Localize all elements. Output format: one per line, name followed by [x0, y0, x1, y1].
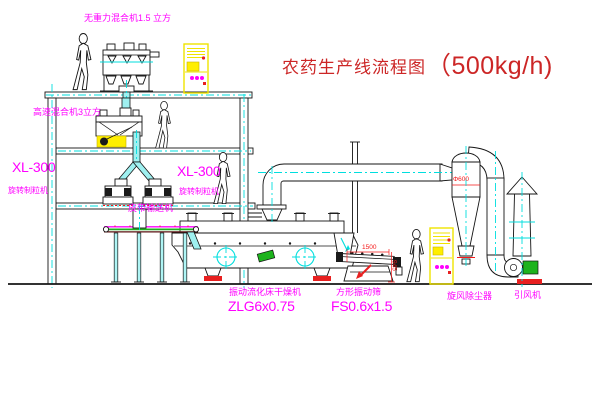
duct-support-post: [350, 142, 360, 233]
dim-sieve-height: 945: [390, 260, 397, 271]
belt-conveyor: [103, 225, 201, 282]
dryer-supports: [204, 268, 331, 281]
label-fan: 引风机: [514, 291, 541, 300]
control-cabinet-top: [184, 44, 208, 93]
person-figure: [407, 229, 424, 281]
control-cabinet-right: [430, 228, 453, 284]
label-gravity-mixer: 无重力混合机1.5 立方: [84, 14, 171, 23]
induced-draft-fan: [505, 259, 543, 285]
label-dryer-name: 振动流化床干燥机: [229, 288, 301, 297]
person-figure: [156, 101, 171, 148]
fan-base: [517, 279, 542, 284]
title-text: 农药生产线流程图: [282, 53, 426, 78]
label-granulator-left-model: XL-300: [12, 160, 55, 174]
fan-motor: [523, 261, 538, 274]
label-high-speed-mixer: 高速混合机3立方: [33, 108, 101, 117]
label-dryer-model: ZLG6x0.75: [228, 299, 295, 313]
process-flow-drawing: 农药生产线流程图 （500kg/h) 无重力混合机1.5 立方 高速混合机3立方…: [0, 0, 600, 403]
dryer-exhaust-duct: [257, 164, 468, 222]
person-figure: [73, 34, 91, 90]
dim-sieve-length: 1500: [362, 245, 376, 252]
label-granulator-left-name: 旋转制粒机: [8, 187, 48, 195]
dryer-air-ports: [186, 213, 340, 221]
label-granulator-right-name: 旋转制粒机: [179, 188, 219, 196]
label-belt-conveyor: 皮带输送机: [128, 204, 173, 213]
title-capacity: （500kg/h): [426, 46, 553, 82]
dim-cyclone: Φ600: [453, 177, 469, 184]
granulator-left: [103, 179, 133, 206]
cyclone-dust-collector: [452, 146, 480, 266]
label-granulator-right-model: XL-300: [177, 164, 220, 178]
label-sieve-name: 方形振动筛: [336, 288, 381, 297]
drawing-title: 农药生产线流程图 （500kg/h): [282, 46, 553, 82]
granulator-right: [143, 179, 173, 206]
label-cyclone: 旋风除尘器: [447, 292, 492, 301]
label-sieve-model: FS0.6x1.5: [331, 299, 392, 313]
